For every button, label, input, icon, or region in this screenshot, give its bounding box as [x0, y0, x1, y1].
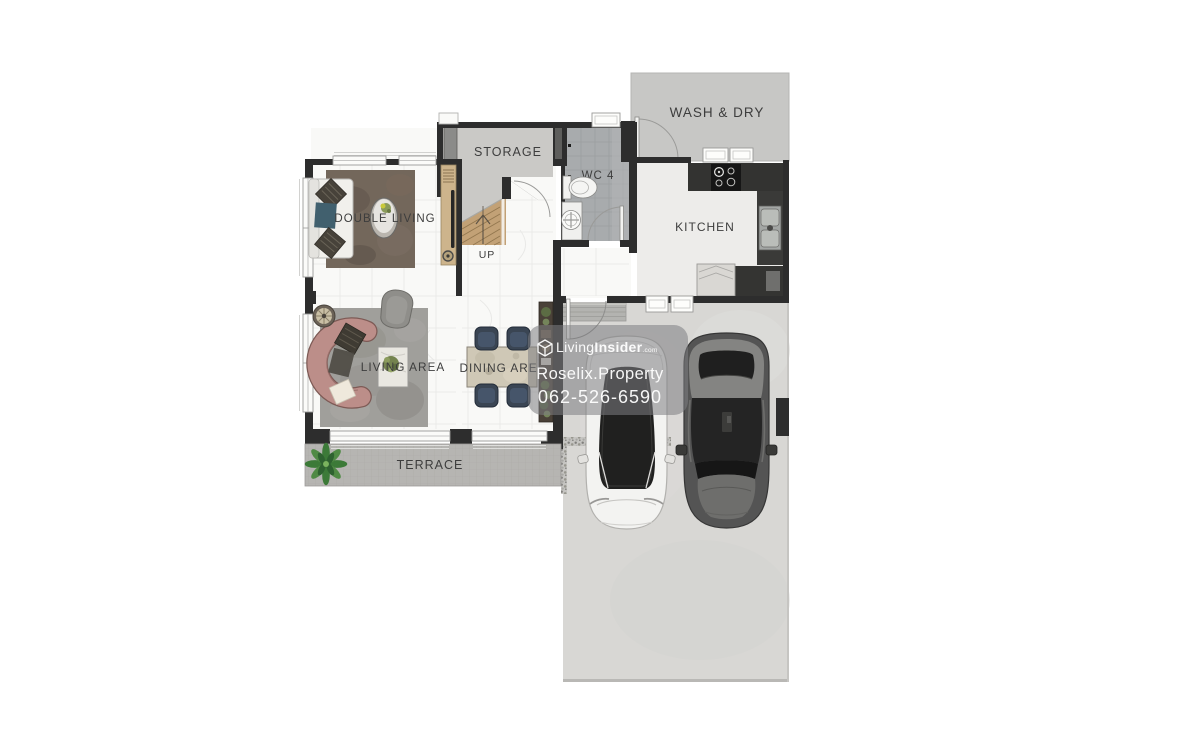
svg-text:Roselix.Property: Roselix.Property	[536, 365, 664, 383]
svg-text:KITCHEN: KITCHEN	[675, 220, 735, 234]
svg-text:UP: UP	[479, 249, 496, 261]
svg-text:WASH & DRY: WASH & DRY	[670, 105, 765, 120]
svg-text:DOUBLE LIVING: DOUBLE LIVING	[334, 213, 435, 225]
svg-text:LIVING AREA: LIVING AREA	[361, 360, 445, 374]
svg-text:062-526-6590: 062-526-6590	[538, 387, 662, 407]
svg-text:STORAGE: STORAGE	[474, 145, 542, 159]
svg-text:TERRACE: TERRACE	[397, 458, 464, 472]
